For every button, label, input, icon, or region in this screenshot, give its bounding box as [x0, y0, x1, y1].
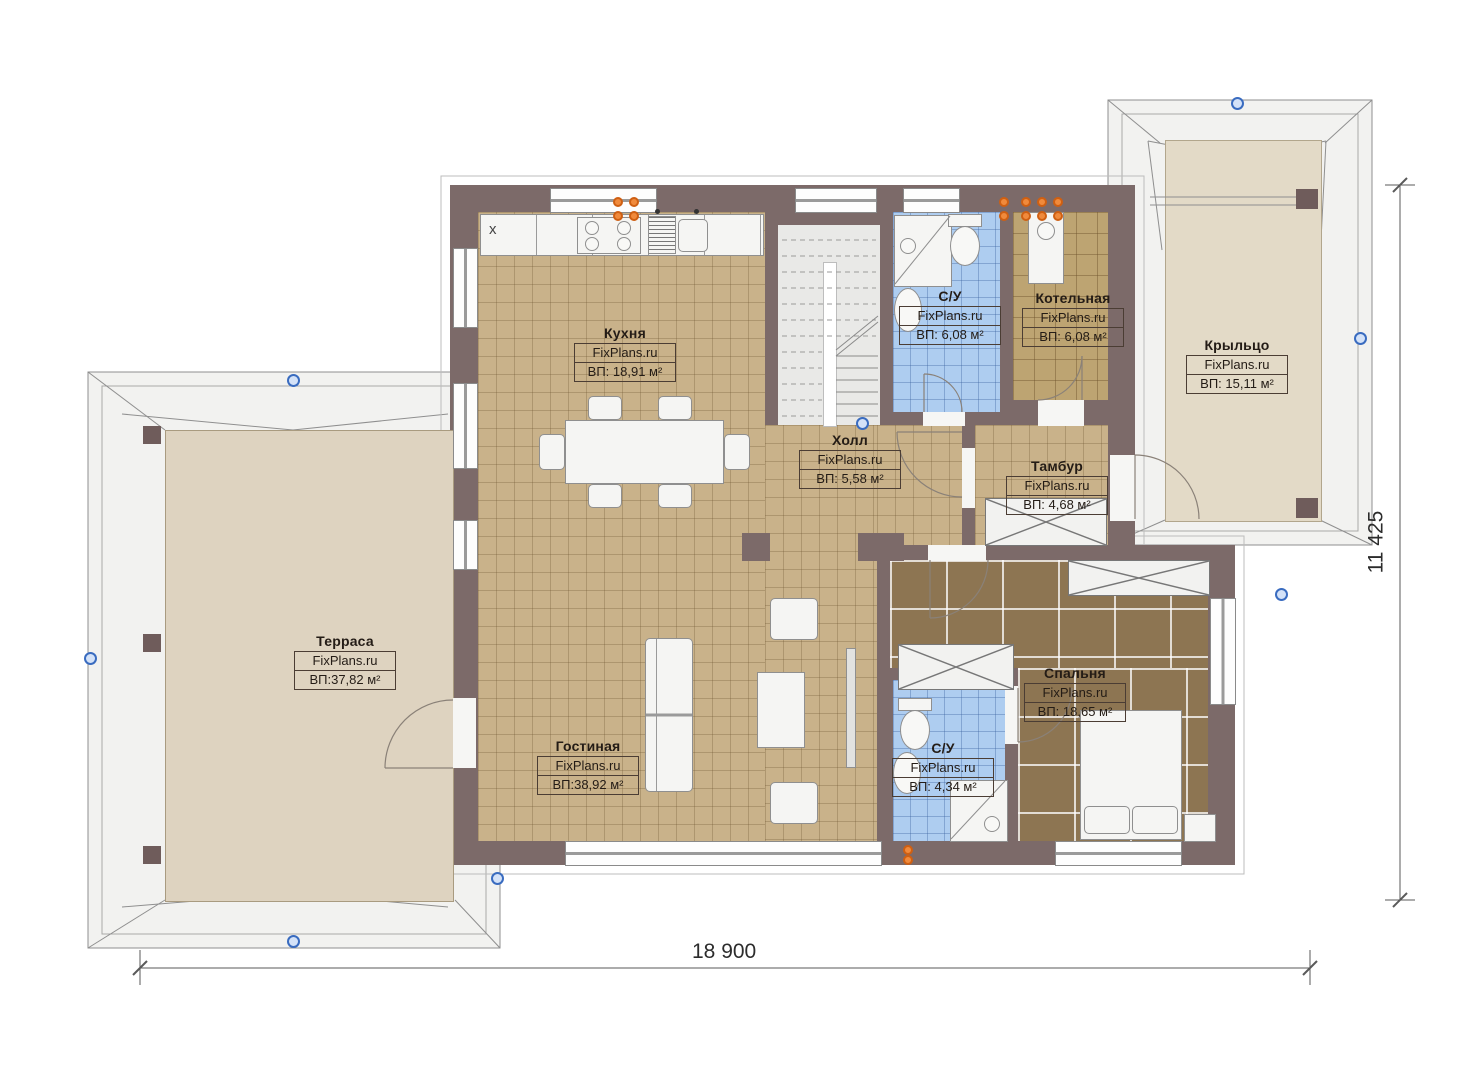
riser-symbol	[903, 845, 913, 855]
boiler-door-opening	[1038, 400, 1084, 426]
terrace-post	[143, 846, 161, 864]
room-label-bathroom-top: С/У FixPlans.ru ВП: 6,08 м²	[899, 288, 1001, 345]
room-label-kitchen: Кухня FixPlans.ru ВП: 18,91 м²	[574, 325, 676, 382]
window	[903, 188, 960, 213]
room-label-terrace: Терраса FixPlans.ru ВП:37,82 м²	[294, 633, 396, 690]
chair	[724, 434, 750, 470]
room-name: Тамбур	[1006, 458, 1108, 474]
area-box: ВП: 5,58 м²	[799, 469, 901, 489]
stove-burner	[617, 221, 631, 235]
window	[565, 841, 882, 866]
room-label-vestibule: Тамбур FixPlans.ru ВП: 4,68 м²	[1006, 458, 1108, 515]
stove-burner	[617, 237, 631, 251]
riser-symbol	[999, 197, 1009, 207]
faucet-dot	[694, 209, 699, 214]
area-box: ВП: 4,34 м²	[892, 777, 994, 797]
riser-symbol	[629, 197, 639, 207]
sink-drainer	[648, 216, 676, 254]
dimension-width-label: 18 900	[692, 940, 756, 964]
riser-symbol	[1053, 211, 1063, 221]
stair-stringer	[823, 262, 837, 427]
shower-drain	[900, 238, 916, 254]
kitchen-sink	[678, 219, 708, 252]
riser-symbol	[999, 211, 1009, 221]
room-name: Спальня	[1024, 665, 1126, 681]
toilet	[950, 226, 980, 266]
window	[1210, 598, 1236, 705]
axis-marker	[856, 417, 869, 430]
terrace-post	[143, 634, 161, 652]
brand-box: FixPlans.ru	[1186, 355, 1288, 375]
axis-marker	[1354, 332, 1367, 345]
window	[453, 383, 478, 469]
corner-cabinet-mark: x	[489, 221, 497, 238]
brand-box: FixPlans.ru	[799, 450, 901, 470]
chair	[539, 434, 565, 470]
brand-box: FixPlans.ru	[1022, 308, 1124, 328]
vestibule-door-opening	[962, 448, 975, 508]
room-label-bedroom: Спальня FixPlans.ru ВП: 18,65 м²	[1024, 665, 1126, 722]
nightstand	[1184, 814, 1216, 842]
tv-unit	[846, 648, 856, 768]
bathroom-door-opening	[923, 412, 965, 426]
riser-symbol	[1021, 211, 1031, 221]
room-label-living-room: Гостиная FixPlans.ru ВП:38,92 м²	[537, 738, 639, 795]
brand-box: FixPlans.ru	[574, 343, 676, 363]
room-name: С/У	[892, 740, 994, 756]
room-name: С/У	[899, 288, 1001, 304]
brand-box: FixPlans.ru	[892, 758, 994, 778]
pillow	[1132, 806, 1178, 834]
wall-stub	[742, 533, 770, 561]
riser-symbol	[903, 855, 913, 865]
room-name: Кухня	[574, 325, 676, 341]
window	[453, 248, 478, 328]
riser-symbol	[1037, 197, 1047, 207]
dining-table	[565, 420, 724, 484]
window	[1055, 841, 1182, 866]
axis-marker	[287, 935, 300, 948]
terrace-post	[143, 426, 161, 444]
floor-plan-canvas: x	[0, 0, 1474, 1080]
room-name: Крыльцо	[1186, 337, 1288, 353]
room-label-porch: Крыльцо FixPlans.ru ВП: 15,11 м²	[1186, 337, 1288, 394]
axis-marker	[1231, 97, 1244, 110]
riser-symbol	[1021, 197, 1031, 207]
stove-burner	[585, 221, 599, 235]
riser-symbol	[629, 211, 639, 221]
window	[453, 520, 478, 570]
area-box: ВП: 18,65 м²	[1024, 702, 1126, 722]
room-name: Терраса	[294, 633, 396, 649]
chair	[658, 396, 692, 420]
room-name: Гостиная	[537, 738, 639, 754]
axis-marker	[1275, 588, 1288, 601]
chair	[588, 396, 622, 420]
porch-post	[1296, 498, 1318, 518]
riser-symbol	[613, 211, 623, 221]
pillow	[1084, 806, 1130, 834]
faucet-dot	[655, 209, 660, 214]
sofa	[645, 638, 693, 792]
bathroom-bottom-door-opening	[1005, 686, 1018, 744]
area-box: ВП: 18,91 м²	[574, 362, 676, 382]
armchair	[770, 598, 818, 640]
bedroom-door-opening	[928, 545, 986, 561]
brand-box: FixPlans.ru	[294, 651, 396, 671]
shower-drain	[984, 816, 1000, 832]
chair	[588, 484, 622, 508]
brand-box: FixPlans.ru	[537, 756, 639, 776]
coffee-table	[757, 672, 805, 748]
chair	[658, 484, 692, 508]
wall-stub	[858, 533, 904, 561]
riser-symbol	[1037, 211, 1047, 221]
axis-marker	[491, 872, 504, 885]
room-label-boiler-room: Котельная FixPlans.ru ВП: 6,08 м²	[1022, 290, 1124, 347]
room-label-bathroom-bottom: С/У FixPlans.ru ВП: 4,34 м²	[892, 740, 994, 797]
axis-marker	[287, 374, 300, 387]
window	[550, 188, 657, 213]
riser-symbol	[613, 197, 623, 207]
axis-marker	[84, 652, 97, 665]
wardrobe	[1068, 560, 1210, 596]
stove-burner	[585, 237, 599, 251]
area-box: ВП:37,82 м²	[294, 670, 396, 690]
porch-post	[1296, 189, 1318, 209]
brand-box: FixPlans.ru	[1024, 683, 1126, 703]
window	[795, 188, 877, 213]
entrance-door-opening	[1110, 455, 1135, 521]
terrace-door-opening	[453, 698, 476, 768]
area-box: ВП:38,92 м²	[537, 775, 639, 795]
brand-box: FixPlans.ru	[899, 306, 1001, 326]
brand-box: FixPlans.ru	[1006, 476, 1108, 496]
area-box: ВП: 6,08 м²	[1022, 327, 1124, 347]
area-box: ВП: 15,11 м²	[1186, 374, 1288, 394]
area-box: ВП: 4,68 м²	[1006, 495, 1108, 515]
dimension-height-label: 11 425	[1364, 511, 1388, 574]
wardrobe	[898, 644, 1014, 690]
area-box: ВП: 6,08 м²	[899, 325, 1001, 345]
riser-symbol	[1053, 197, 1063, 207]
armchair	[770, 782, 818, 824]
room-label-hall: Холл FixPlans.ru ВП: 5,58 м²	[799, 432, 901, 489]
room-name: Котельная	[1022, 290, 1124, 306]
boiler-dial	[1037, 222, 1055, 240]
room-name: Холл	[799, 432, 901, 448]
